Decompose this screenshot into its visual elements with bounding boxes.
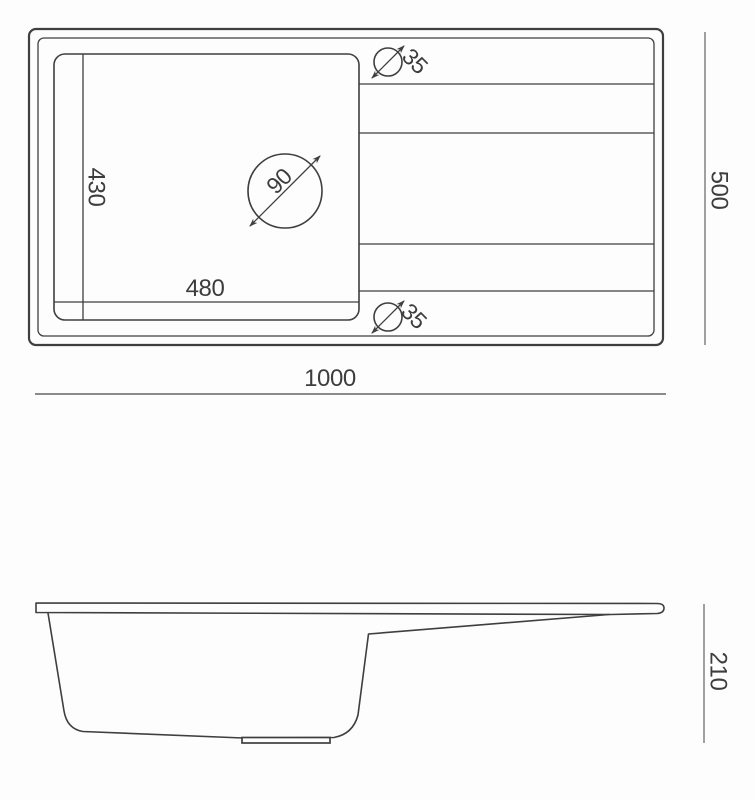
- faucet-hole-diameter-label: 90: [261, 163, 297, 199]
- sink-side-view: 210: [36, 603, 732, 743]
- outer-edge-outline: [29, 29, 663, 345]
- sink-top-view: 90 35 35 430 480 500 1000: [29, 29, 733, 394]
- drain-outlet: [242, 738, 330, 744]
- overall-width-label: 1000: [304, 365, 356, 392]
- body-profile: [48, 613, 609, 738]
- bowl-depth-label: 430: [83, 168, 110, 207]
- rim-profile: [36, 603, 664, 615]
- overall-height-label: 210: [705, 652, 732, 691]
- sink-technical-drawing: 90 35 35 430 480 500 1000: [0, 0, 755, 800]
- bowl-width-label: 480: [186, 275, 225, 302]
- overall-depth-label: 500: [706, 171, 733, 210]
- drawing-canvas: 90 35 35 430 480 500 1000: [0, 0, 755, 800]
